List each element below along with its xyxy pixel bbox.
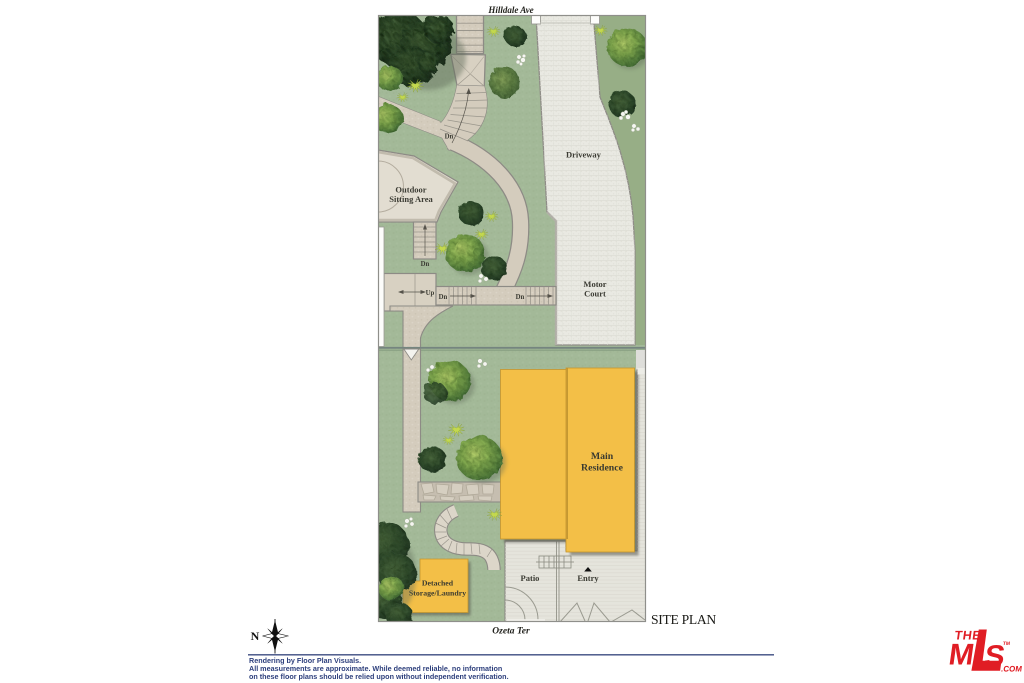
svg-text:Outdoor: Outdoor	[395, 185, 426, 195]
svg-text:Entry: Entry	[577, 573, 599, 583]
svg-text:Sitting Area: Sitting Area	[389, 194, 433, 204]
svg-text:Up: Up	[426, 290, 435, 297]
svg-text:Court: Court	[584, 289, 606, 299]
svg-text:Residence: Residence	[581, 463, 624, 474]
svg-text:.COM: .COM	[1001, 665, 1023, 674]
svg-text:TM: TM	[1002, 641, 1010, 647]
svg-text:Dn: Dn	[445, 134, 454, 141]
svg-text:Detached: Detached	[422, 579, 454, 588]
svg-text:Hilldale Ave: Hilldale Ave	[487, 5, 533, 15]
svg-text:Ozeta Ter: Ozeta Ter	[492, 627, 530, 637]
svg-text:Dn: Dn	[439, 294, 448, 301]
svg-text:Storage/Laundry: Storage/Laundry	[409, 589, 466, 598]
svg-text:Patio: Patio	[521, 573, 540, 583]
svg-text:SITE PLAN: SITE PLAN	[651, 612, 716, 627]
svg-text:N: N	[251, 629, 260, 643]
svg-text:Motor: Motor	[583, 279, 606, 289]
svg-text:on these floor plans should be: on these floor plans should be relied up…	[249, 672, 509, 681]
svg-text:Dn: Dn	[516, 294, 525, 301]
svg-text:Driveway: Driveway	[566, 150, 602, 160]
svg-text:M: M	[947, 639, 977, 672]
svg-text:Main: Main	[591, 451, 614, 462]
svg-text:Dn: Dn	[421, 261, 430, 268]
